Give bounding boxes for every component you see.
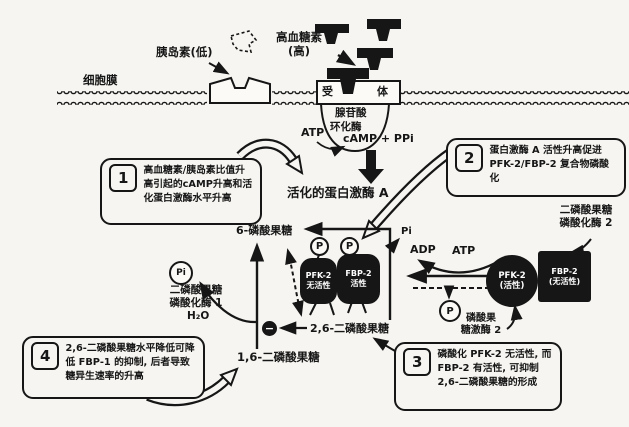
mid-fbp2-name: FBP-2 xyxy=(345,269,371,279)
fbpase1-label-line1: 二磷酸果糖 xyxy=(145,284,247,297)
callout-3-text: 磷酸化 PFK-2 无活性, 而 FBP-2 有活性, 可抑制 2,6-二磷酸果… xyxy=(437,348,553,391)
mid-fbp2-state: 活性 xyxy=(351,279,367,289)
h2o-label: H₂O xyxy=(187,310,209,323)
receptor-label-left: 受 xyxy=(322,85,333,98)
pfk2-kinase-label-line2: 糖激酶 2 xyxy=(452,325,510,337)
camp-to-pka-arrow xyxy=(358,150,384,184)
membrane-beads-left xyxy=(57,91,207,105)
insulin-arrow xyxy=(209,63,227,73)
adenylate-cyclase-label-line1: 腺苷酸 xyxy=(335,107,367,120)
mid-pfk2-state: 无活性 xyxy=(307,281,331,291)
glucagon-label-line2: (高) xyxy=(288,45,310,59)
membrane-beads-right xyxy=(400,91,629,105)
right-fbp2-name: FBP-2 xyxy=(551,267,577,277)
membrane-label: 细胞膜 xyxy=(83,74,118,88)
glucagon-label-line1: 高血糖素 xyxy=(276,31,322,45)
atp2-label: ATP xyxy=(452,244,475,257)
fbpase2-label-line2: 磷酸化酶 2 xyxy=(545,217,627,230)
mid-pfk2-name: PFK-2 xyxy=(306,271,332,281)
fbpase2-label: 二磷酸果糖 磷酸化酶 2 xyxy=(545,204,627,229)
adp-label: ADP xyxy=(410,243,436,256)
pka-label: 活化的蛋白激酶 A xyxy=(287,185,389,200)
callout-3-number: 3 xyxy=(403,348,431,376)
glucagon-arrow xyxy=(338,55,353,64)
callout-box-1: 1 高血糖素/胰岛素比值升高引起的cAMP升高和活化蛋白激酶水平升高 xyxy=(100,158,262,225)
callout-box-3: 3 磷酸化 PFK-2 无活性, 而 FBP-2 有活性, 可抑制 2,6-二磷… xyxy=(394,342,562,411)
insulin-label: 胰岛素(低) xyxy=(156,46,213,60)
right-complex-fbp2: FBP-2 (无活性) xyxy=(538,251,591,302)
right-pfk2-name: PFK-2 xyxy=(498,271,525,281)
complex-foot-2 xyxy=(330,303,334,315)
callout-4-number: 4 xyxy=(31,342,59,370)
complex-foot-1 xyxy=(310,303,316,315)
right-pfk2-state: (活性) xyxy=(500,281,525,291)
callout-1-text: 高血糖素/胰岛素比值升高引起的cAMP升高和活化蛋白激酶水平升高 xyxy=(143,164,253,207)
phosphate-tag-2: P xyxy=(340,237,359,256)
glucagon-molecule-2 xyxy=(367,19,401,41)
camp-ppi-label: cAMP + PPi xyxy=(343,132,414,145)
fbpase2-label-line1: 二磷酸果糖 xyxy=(545,204,627,217)
glucagon-molecule-3 xyxy=(357,48,393,70)
mid-complex-fbp2: FBP-2 活性 xyxy=(337,254,380,304)
f6p-label: 6-磷酸果糖 xyxy=(236,224,292,237)
callout-4-text: 2,6-二磷酸果糖水平降低可降低 FBP-1 的抑制, 后者导致糖异生速率的升高 xyxy=(65,342,196,385)
pfk2-kinase-label: 磷酸果 糖激酶 2 xyxy=(452,313,510,337)
right-fbp2-state: (无活性) xyxy=(549,277,580,287)
callout-box-2: 2 蛋白激酶 A 活性升高促进 PFK-2/FBP-2 复合物磷酸化 xyxy=(446,138,626,197)
right-complex-pfk2: PFK-2 (活性) xyxy=(486,255,538,307)
f16bp-label: 1,6-二磷酸果糖 xyxy=(237,351,320,365)
fbpase1-label: 二磷酸果糖 磷酸化酶 1 xyxy=(145,284,247,309)
phosphate-tag-1: P xyxy=(310,237,329,256)
mid-complex-pfk2: PFK-2 无活性 xyxy=(300,258,337,304)
insulin-receptor xyxy=(210,78,270,103)
fbpase1-label-line2: 磷酸化酶 1 xyxy=(145,297,247,310)
pi-released-circle: Pi xyxy=(169,261,193,285)
pi-branch-label: Pi xyxy=(401,226,412,238)
membrane-beads-mid xyxy=(272,91,317,105)
callout-2-number: 2 xyxy=(455,144,483,172)
atp-label: ATP xyxy=(301,126,324,139)
callout-1-number: 1 xyxy=(109,164,137,192)
pfk2-kinase-label-line1: 磷酸果 xyxy=(452,313,510,325)
pathway-diagram: 细胞膜 胰岛素(低) 高血糖素 (高) 受 体 腺苷酸 环化酶 ATP cAMP… xyxy=(0,0,629,427)
p-released-circle: P xyxy=(439,300,461,322)
inhibition-minus-circle: − xyxy=(262,321,277,336)
callout-2-text: 蛋白激酶 A 活性升高促进 PFK-2/FBP-2 复合物磷酸化 xyxy=(489,144,617,187)
f26bp-label: 2,6-二磷酸果糖 xyxy=(310,322,389,335)
insulin-molecule-dashed xyxy=(231,31,256,52)
receptor-label-right: 体 xyxy=(377,85,388,98)
callout-box-4: 4 2,6-二磷酸果糖水平降低可降低 FBP-1 的抑制, 后者导致糖异生速率的… xyxy=(22,336,205,399)
